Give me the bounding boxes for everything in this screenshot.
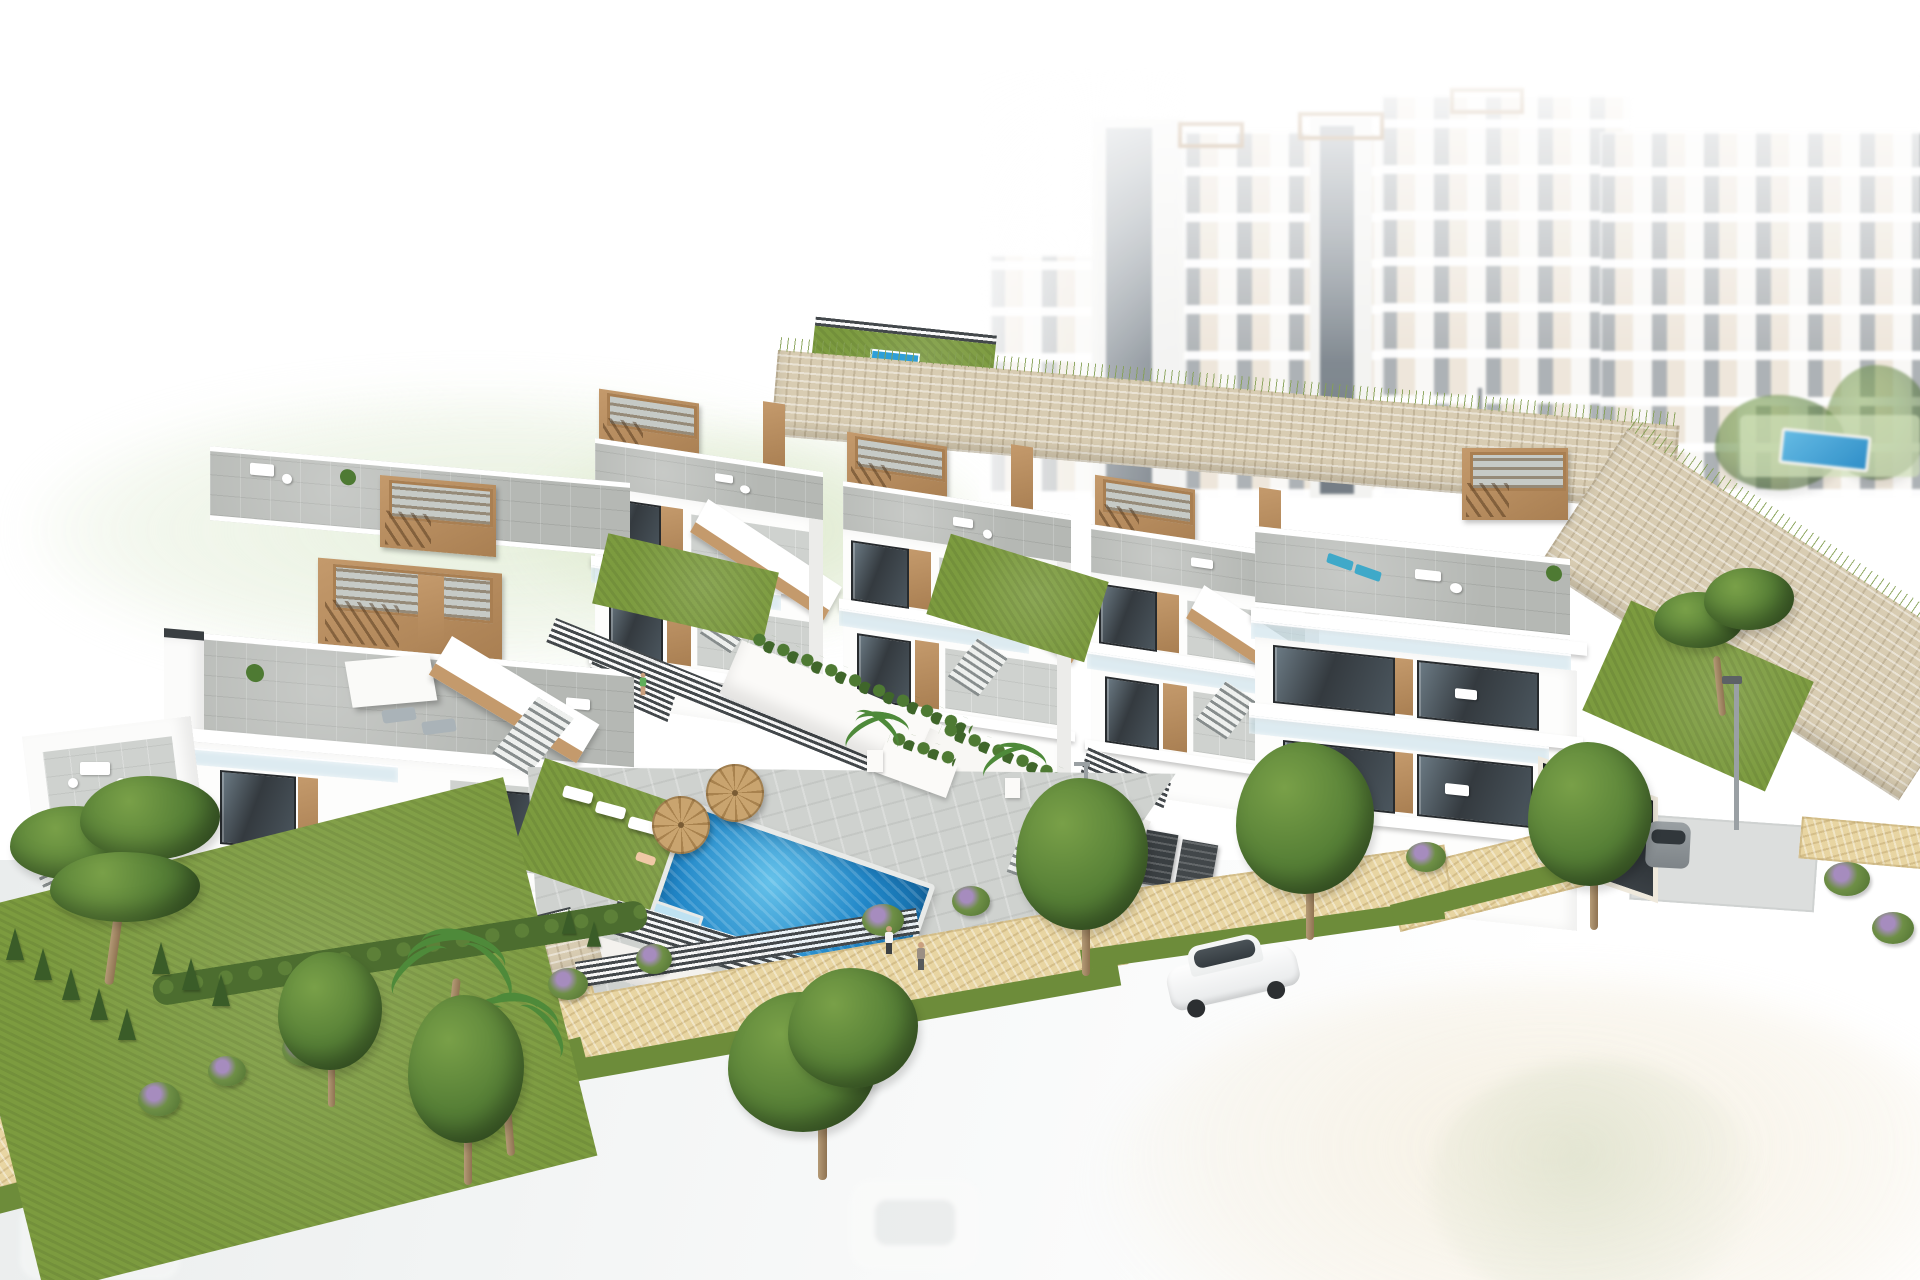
- leafy-tree-large: [728, 968, 918, 1183]
- chimney: [1011, 444, 1033, 513]
- cypress-tree: [118, 1008, 136, 1040]
- chimney: [763, 401, 785, 470]
- roof-furniture: [715, 473, 733, 484]
- roof-plant: [340, 468, 356, 485]
- sunbathing-person: [635, 851, 657, 866]
- leafy-tree: [278, 952, 388, 1112]
- roof-lounger: [1326, 553, 1354, 571]
- flowering-shrub: [1406, 842, 1446, 872]
- main-roof-pergola: [318, 558, 502, 660]
- roof-chair: [282, 473, 292, 484]
- roof-furniture: [740, 485, 750, 494]
- potted-palm: [845, 712, 905, 772]
- end-unit-pergola: [1462, 448, 1568, 520]
- roof-lounger: [421, 718, 457, 735]
- door-panel: [909, 549, 931, 610]
- door-panel: [1157, 592, 1179, 653]
- pool-parasol: [706, 764, 764, 822]
- lower-window: [1105, 676, 1159, 750]
- rear-roof-pergola: [380, 475, 496, 557]
- tan-column: [1395, 658, 1413, 716]
- street-lamp: [1722, 676, 1752, 836]
- roof-cantilever-parasol: [345, 654, 438, 708]
- roof-furniture: [953, 517, 973, 529]
- terrace-window: [1273, 645, 1395, 716]
- entrance-door: [1163, 683, 1187, 753]
- lower-terrace-window: [1417, 754, 1533, 828]
- roof-table: [1450, 582, 1462, 593]
- roof-furniture: [983, 529, 992, 539]
- flowering-shrub: [636, 944, 672, 974]
- roof-dining-set: [250, 463, 274, 477]
- sun-lounger: [595, 801, 627, 820]
- flowering-shrub: [1824, 862, 1870, 896]
- flowering-shrub: [1872, 912, 1914, 944]
- flowering-shrub: [208, 1056, 246, 1086]
- roof-lounger: [381, 707, 417, 724]
- terrace-window: [1417, 660, 1539, 731]
- upper-window: [851, 540, 909, 609]
- roof-sofa: [1415, 569, 1441, 582]
- leafy-tree: [408, 995, 528, 1190]
- flowering-shrub: [952, 886, 990, 916]
- flowering-shrub: [862, 904, 904, 936]
- pool-parasol: [652, 796, 710, 854]
- roof-plant: [246, 663, 264, 683]
- cypress-tree: [587, 921, 601, 947]
- cypress-tree: [562, 908, 576, 934]
- flowering-shrub: [138, 1082, 180, 1116]
- upper-window: [1099, 583, 1157, 652]
- leafy-tree: [1016, 778, 1156, 978]
- pedestrian: [916, 942, 926, 970]
- leafy-tree: [1236, 742, 1381, 942]
- pedestrian: [884, 926, 894, 954]
- roof-lounger: [1354, 564, 1382, 582]
- roof-furniture: [1191, 557, 1213, 569]
- person-on-balcony: [639, 673, 647, 695]
- architectural-rendering: [0, 0, 1920, 1280]
- leafy-tree: [1528, 742, 1658, 932]
- tan-column: [1395, 752, 1413, 814]
- flowering-shrub: [548, 968, 588, 1000]
- pine-tree: [10, 770, 240, 1000]
- roof-plant: [1546, 565, 1562, 583]
- sun-lounger: [562, 785, 594, 804]
